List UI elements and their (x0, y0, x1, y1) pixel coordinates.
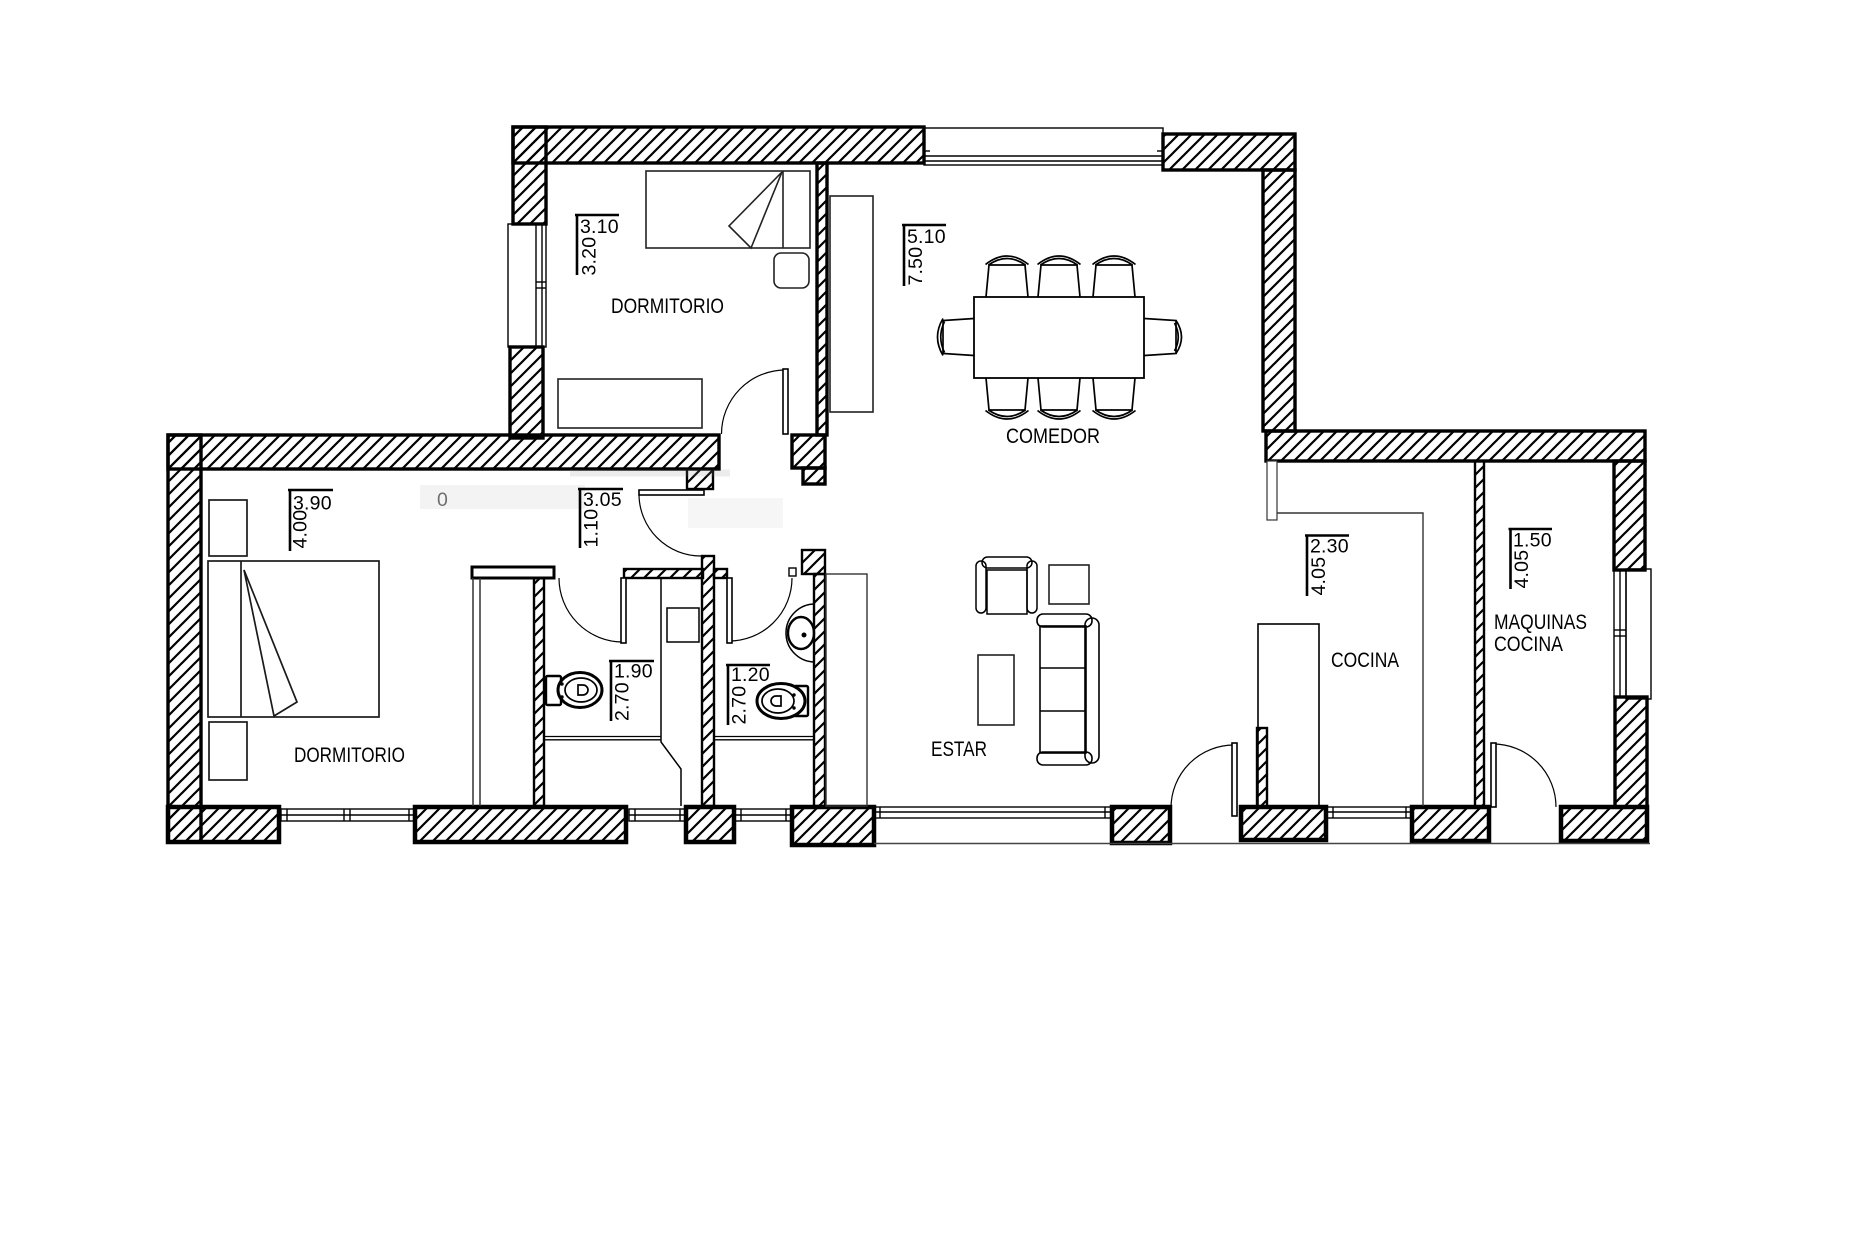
svg-text:DORMITORIO: DORMITORIO (294, 744, 405, 767)
svg-text:1.10: 1.10 (581, 509, 603, 548)
svg-text:ESTAR: ESTAR (931, 738, 987, 761)
svg-text:COCINA: COCINA (1494, 633, 1563, 656)
svg-text:0: 0 (437, 489, 448, 511)
svg-text:2.70: 2.70 (612, 682, 634, 721)
svg-text:4.00: 4.00 (290, 510, 312, 549)
svg-text:5.10: 5.10 (907, 226, 946, 248)
svg-text:DORMITORIO: DORMITORIO (611, 295, 724, 318)
svg-text:7.50: 7.50 (905, 247, 927, 286)
svg-text:2.70: 2.70 (729, 686, 751, 725)
svg-text:2.30: 2.30 (1310, 536, 1349, 558)
svg-text:4.05: 4.05 (1511, 550, 1533, 589)
svg-text:4.05: 4.05 (1308, 557, 1330, 596)
svg-text:COCINA: COCINA (1331, 649, 1399, 672)
svg-text:3.20: 3.20 (579, 237, 601, 276)
svg-text:1.20: 1.20 (731, 664, 770, 686)
svg-text:3.05: 3.05 (583, 489, 622, 511)
svg-text:3.10: 3.10 (580, 216, 619, 238)
svg-text:MAQUINAS: MAQUINAS (1494, 611, 1587, 634)
svg-text:1.50: 1.50 (1513, 530, 1552, 552)
svg-text:COMEDOR: COMEDOR (1006, 425, 1100, 448)
svg-text:1.90: 1.90 (614, 661, 653, 683)
